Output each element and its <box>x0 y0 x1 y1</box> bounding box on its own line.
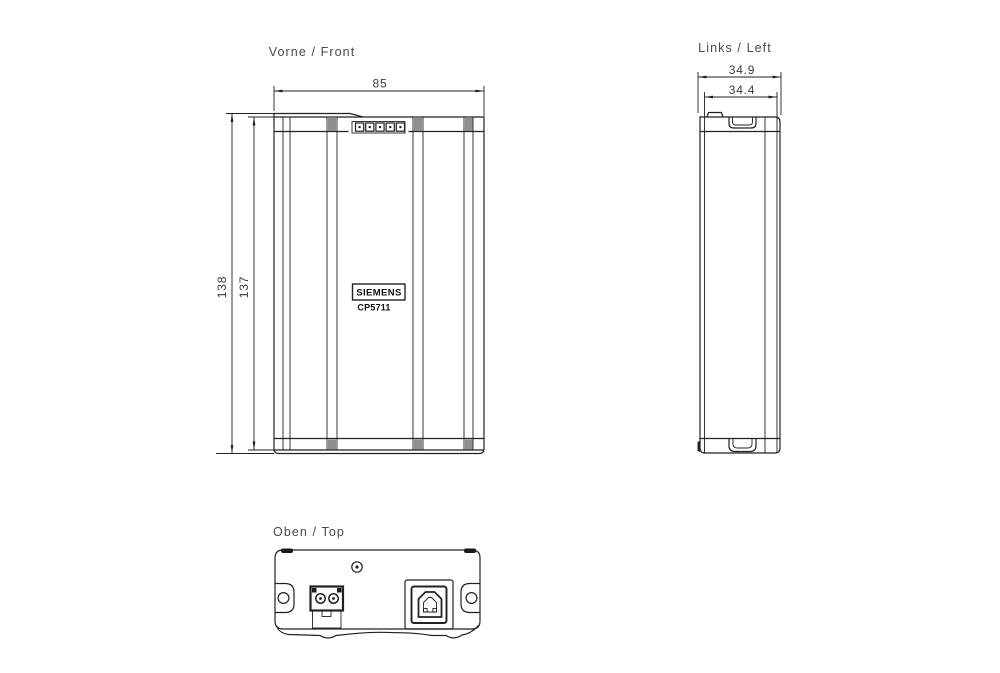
model-number-text: CP5711 <box>357 303 390 313</box>
top-housing-front-contour <box>277 626 479 639</box>
mounting-hole-right <box>461 584 480 613</box>
dimension-arrow-icon <box>231 114 234 123</box>
left-top-notch-inner <box>733 118 753 126</box>
front-view-label: Vorne / Front <box>269 45 356 59</box>
drawing-texts: Vorne / Front 85 138 137 SIEMENS CP5711 … <box>215 41 772 539</box>
front-height-inner-dimension <box>248 117 274 450</box>
connector-corner-mark <box>337 588 342 593</box>
dimension-arrow-icon <box>253 442 256 451</box>
dimension-arrow-icon <box>773 76 782 79</box>
top-view <box>275 549 480 639</box>
drawing-canvas: Vorne / Front 85 138 137 SIEMENS CP5711 … <box>0 0 1000 673</box>
connector-corner-mark <box>312 588 317 593</box>
din-latch-inner <box>733 439 752 449</box>
front-height-outer-dim-text: 138 <box>215 276 229 298</box>
left-top-tab <box>707 113 723 118</box>
front-view <box>216 86 484 454</box>
dimension-arrow-icon <box>476 90 485 93</box>
usb-b-port <box>405 580 453 629</box>
mounting-hole-icon <box>278 593 289 604</box>
top-corner-tab-left <box>281 549 293 554</box>
siemens-logo-text: SIEMENS <box>356 288 402 299</box>
dimension-arrow-icon <box>698 76 707 79</box>
mounting-hole-left <box>275 584 294 613</box>
left-top-notch-outer <box>729 118 756 129</box>
front-width-dim-text: 85 <box>373 77 388 91</box>
dimension-arrow-icon <box>769 96 778 99</box>
power-connector <box>311 587 344 629</box>
left-view-label: Links / Left <box>698 41 772 55</box>
left-foot-mark <box>698 441 701 452</box>
dimension-arrow-icon <box>274 90 283 93</box>
technical-drawing-page: Vorne / Front 85 138 137 SIEMENS CP5711 … <box>0 0 1000 673</box>
top-corner-tab-right <box>464 549 476 554</box>
front-height-inner-dim-text: 137 <box>237 276 251 298</box>
left-depth-outer-dim-text: 34.9 <box>729 63 756 77</box>
dimension-arrow-icon <box>231 445 234 454</box>
front-width-dimension <box>274 86 484 116</box>
usb-b-inner-shape <box>424 598 437 613</box>
top-view-label: Oben / Top <box>273 525 345 539</box>
power-connector-base <box>313 611 342 629</box>
screw-hole-icon <box>352 562 362 572</box>
mounting-hole-icon <box>466 593 477 604</box>
top-housing-outline <box>275 550 480 629</box>
left-depth-inner-dim-text: 34.4 <box>729 83 756 97</box>
led-cluster <box>349 119 409 135</box>
left-housing-outline <box>700 117 780 453</box>
left-view <box>698 72 782 453</box>
usb-b-icon <box>419 592 442 617</box>
dimension-arrow-icon <box>705 96 714 99</box>
dimension-arrow-icon <box>253 117 256 126</box>
